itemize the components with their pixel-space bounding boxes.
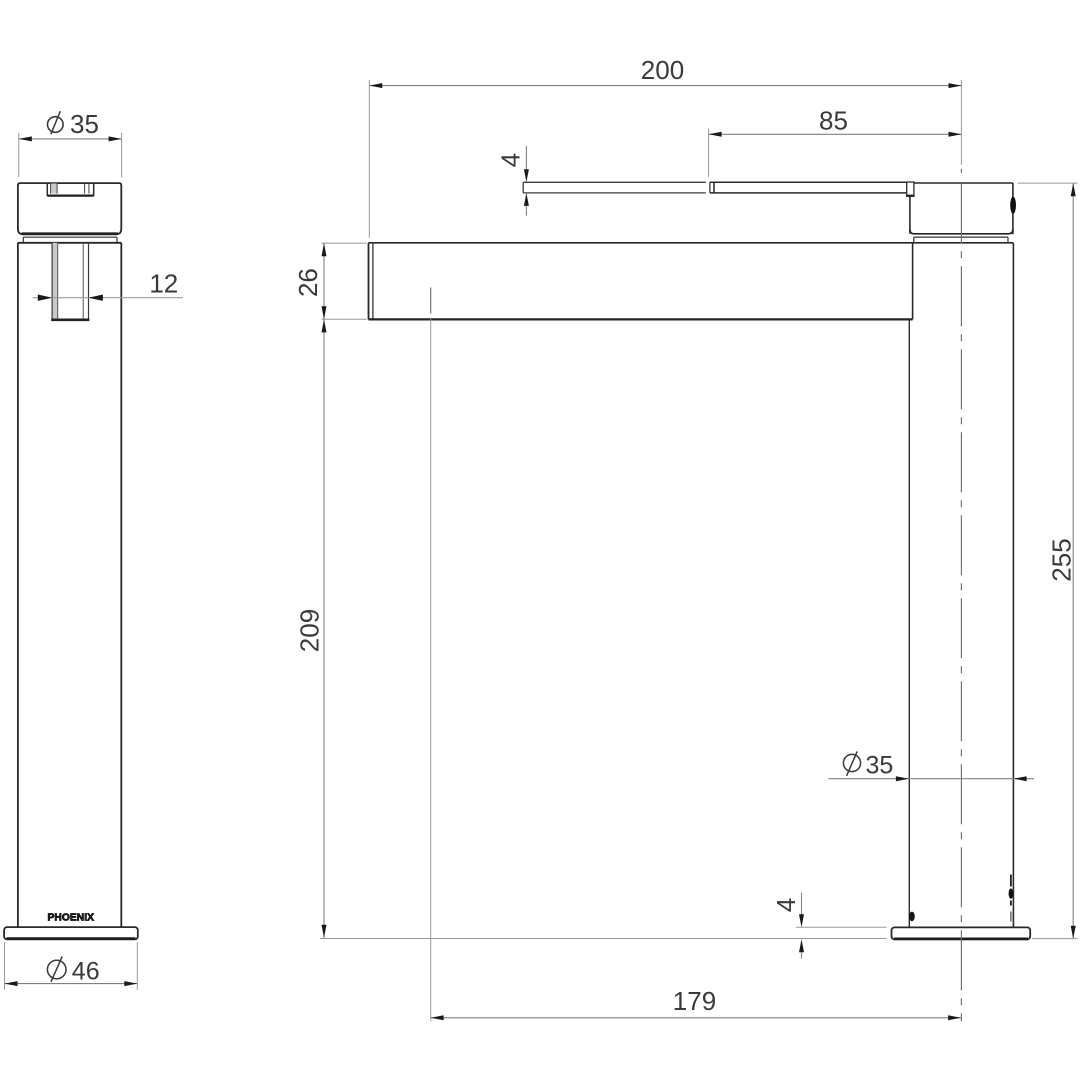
svg-text:35: 35 xyxy=(70,109,99,139)
svg-text:179: 179 xyxy=(673,986,716,1016)
svg-text:85: 85 xyxy=(819,105,848,135)
svg-text:35: 35 xyxy=(866,752,894,780)
svg-text:26: 26 xyxy=(293,268,323,297)
svg-text:4: 4 xyxy=(496,153,526,167)
svg-text:4: 4 xyxy=(771,898,801,912)
svg-text:PHOENIX: PHOENIX xyxy=(48,913,95,924)
svg-text:209: 209 xyxy=(295,609,325,652)
svg-text:200: 200 xyxy=(641,55,684,85)
svg-text:46: 46 xyxy=(72,958,100,986)
svg-text:255: 255 xyxy=(1047,538,1077,581)
svg-text:12: 12 xyxy=(149,269,178,299)
